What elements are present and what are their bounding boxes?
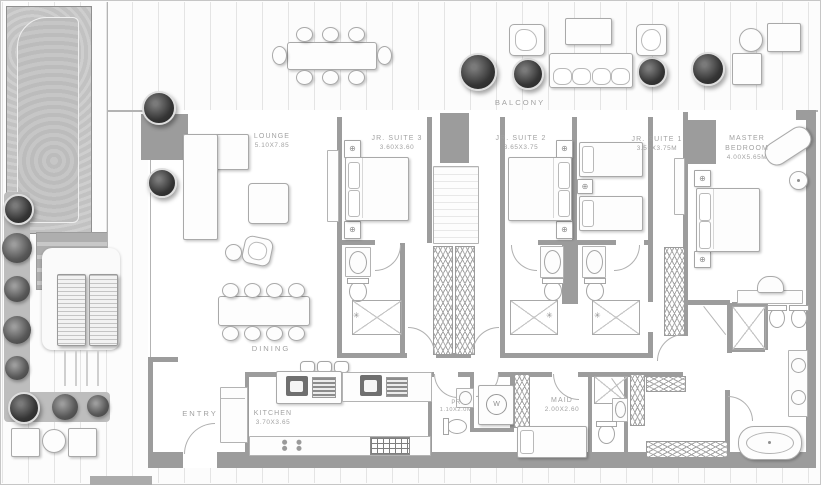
cushion (246, 240, 268, 262)
sink (791, 390, 806, 405)
dresser (674, 158, 685, 215)
shower-head-icon: ✳ (353, 312, 360, 320)
pillow (348, 190, 360, 217)
deck-step-boards (64, 350, 108, 386)
nightstand: ⊕ (694, 170, 711, 187)
nightstand: ⊕ (556, 221, 573, 239)
gas-hob (370, 437, 410, 455)
wardrobe (455, 246, 475, 355)
room-dims: 3.60X3.60 (372, 144, 423, 153)
toilet-tank (347, 278, 369, 284)
cooktop (278, 438, 308, 452)
shrub-icon (87, 395, 109, 417)
cushion (641, 29, 661, 51)
dining-chair (288, 326, 305, 341)
sink (349, 251, 367, 274)
washer-drum: W (486, 394, 507, 415)
dining-chair (288, 283, 305, 298)
room-name: JR. SUITE 1 (632, 136, 683, 143)
sink (586, 250, 603, 274)
toilet-tank (443, 418, 449, 435)
wall (148, 357, 178, 362)
counter-sink (360, 375, 382, 396)
column (796, 110, 808, 120)
potted-plant-icon (142, 91, 176, 125)
sink (791, 358, 806, 373)
nightstand: ⊕ (344, 221, 361, 239)
shrub-icon (2, 233, 32, 263)
nightstand: ⊕ (694, 251, 711, 268)
bed-maid (517, 426, 587, 458)
outdoor-dining-chair (296, 27, 313, 42)
bed-jr-suite-3 (345, 157, 409, 221)
wardrobe (646, 441, 728, 458)
room-dims: 1.10X2.0M (440, 407, 472, 415)
outdoor-dining-chair (322, 27, 339, 42)
toilet-tank (596, 421, 617, 427)
side-table (225, 244, 242, 261)
toilet (447, 419, 467, 434)
kitchen-label: KITCHEN 3.70X3.65 (254, 409, 292, 428)
dining-chair (244, 326, 261, 341)
outdoor-dining-chair (377, 46, 392, 65)
floor-plan: ⊕ ⊕ ⊕ ⊕ ⊕ ⊕ ⊕ ✳ (0, 0, 821, 485)
wardrobe (433, 246, 453, 355)
outdoor-armchair (636, 24, 667, 56)
outdoor-stool (732, 53, 762, 85)
center-dot (797, 179, 800, 182)
oven-rack (386, 377, 408, 397)
washer-label: W (493, 401, 500, 408)
bed-master (696, 188, 760, 252)
wall (644, 240, 653, 245)
closet-bench (433, 166, 479, 244)
toilet (598, 424, 615, 444)
powder-room-label: PR 1.10X2.0M (440, 399, 472, 415)
shower-head-icon: ✳ (594, 312, 601, 320)
shrub-icon (52, 394, 78, 420)
outdoor-chair (11, 428, 40, 457)
outdoor-armchair (509, 24, 545, 56)
bidet (791, 308, 807, 328)
wall (427, 117, 432, 243)
wall (342, 240, 375, 245)
balcony-label: BALCONY (495, 98, 545, 109)
dining-chair (222, 283, 239, 298)
tv-console (327, 150, 339, 222)
washing-machine: W (478, 385, 514, 425)
deck-edge-shadow (90, 476, 152, 485)
entry-label: ENTRY (182, 409, 218, 420)
room-name: MASTER BEDROOM (725, 135, 769, 152)
lamp-icon: ⊕ (699, 175, 706, 183)
entry-door-gap (183, 452, 217, 468)
vanity-stool (757, 276, 784, 293)
outdoor-dining-chair (322, 70, 339, 85)
room-dims: 3.65X3.75 (496, 144, 547, 153)
outdoor-dining-chair (296, 70, 313, 85)
toilet (769, 308, 785, 328)
wall (648, 332, 653, 358)
jr-suite-2-label: JR. SUITE 2 3.65X3.75 (496, 134, 547, 153)
outdoor-side-table (767, 23, 801, 52)
room-name: LOUNGE (254, 133, 290, 140)
sink-basin (290, 381, 303, 392)
wall (474, 428, 514, 432)
wall (500, 353, 648, 358)
tub-drain (768, 441, 771, 444)
nightstand: ⊕ (556, 140, 573, 158)
shrub-icon (3, 316, 31, 344)
potted-plant-icon (147, 168, 177, 198)
coffee-table (248, 183, 289, 224)
pouf-table (789, 171, 808, 190)
wall (578, 240, 616, 245)
dining-chair (244, 283, 261, 298)
planter-plant-icon (8, 392, 40, 424)
outdoor-dining-chair (272, 46, 287, 65)
shrub-icon (4, 276, 30, 302)
dining-label: DINING (252, 344, 291, 355)
nightstand: ⊕ (344, 140, 361, 158)
fridge-divider (221, 398, 245, 399)
pillow (348, 162, 360, 189)
cushion (592, 68, 611, 85)
column (686, 120, 716, 164)
toilet-tank (767, 305, 787, 311)
cushion (553, 68, 572, 85)
pillow (582, 200, 594, 227)
lamp-icon: ⊕ (561, 145, 568, 153)
blanket-line (713, 189, 714, 249)
pillow (582, 146, 594, 173)
room-dims: 5.10X7.85 (254, 142, 290, 151)
sink-basin (364, 380, 377, 392)
wall (337, 353, 407, 358)
room-name: JR. SUITE 3 (372, 135, 423, 142)
outdoor-dining-chair (348, 70, 365, 85)
outdoor-round-table (42, 429, 66, 453)
shower-head-icon: ✳ (546, 312, 553, 320)
potted-plant-icon (459, 53, 497, 91)
jr-suite-3-label: JR. SUITE 3 3.60X3.60 (372, 134, 423, 153)
wall (588, 372, 592, 458)
wall (500, 117, 505, 358)
pillow (558, 162, 570, 189)
wall (688, 300, 730, 305)
toilet (586, 281, 604, 301)
outdoor-side-table (565, 18, 612, 45)
wardrobe (664, 247, 685, 336)
lamp-icon: ⊕ (582, 183, 589, 191)
sun-lounger (89, 274, 118, 346)
pillow (520, 430, 534, 454)
toilet (349, 281, 367, 302)
fridge (220, 387, 248, 443)
room-dims: 2.00X2.60 (545, 406, 580, 415)
blanket-line (362, 158, 363, 218)
dining-chair (222, 326, 239, 341)
room-dims: 4.00X5.65M (719, 154, 775, 163)
lamp-icon: ⊕ (561, 226, 568, 234)
shower (732, 306, 766, 350)
dining-table (218, 296, 310, 326)
dining-chair (266, 326, 283, 341)
jr-suite-1-label: JR. SUITE 1 3.55X3.75M (632, 135, 683, 154)
lamp-icon: ⊕ (349, 145, 356, 153)
room-name: JR. SUITE 2 (496, 135, 547, 142)
dining-chair (266, 283, 283, 298)
bidet-tank (789, 305, 809, 311)
wall (148, 357, 153, 457)
outdoor-round-table (739, 28, 763, 52)
cushion (611, 68, 630, 85)
lounge-label: LOUNGE 5.10X7.85 (254, 132, 290, 151)
pillow (558, 190, 570, 217)
wardrobe (514, 374, 530, 428)
potted-plant-icon (637, 57, 667, 87)
room-dims: 3.55X3.75M (632, 145, 683, 154)
outdoor-dining-chair (348, 27, 365, 42)
wardrobe (630, 374, 645, 426)
toilet (544, 281, 562, 301)
outdoor-sofa (549, 53, 633, 88)
shrub-icon (5, 356, 29, 380)
lamp-icon: ⊕ (349, 226, 356, 234)
bed-single (579, 196, 643, 231)
sun-lounger (57, 274, 86, 346)
column (440, 113, 469, 163)
pillow (699, 193, 711, 221)
room-dims: 3.70X3.65 (254, 419, 292, 428)
room-name: KITCHEN (254, 410, 292, 417)
maid-room-label: MAID 2.00X2.60 (545, 396, 580, 415)
bathtub (738, 426, 802, 460)
outdoor-dining-table (287, 42, 377, 70)
wardrobe (646, 376, 686, 392)
toilet-tank (542, 278, 564, 284)
room-name: PR (451, 400, 460, 406)
lamp-icon: ⊕ (699, 256, 706, 264)
island-sink (286, 376, 308, 396)
sofa-l-shape (183, 134, 218, 240)
potted-plant-icon (512, 58, 544, 90)
cushion (572, 68, 591, 85)
wall (562, 240, 578, 304)
island-grill (312, 377, 336, 398)
blanket-line (553, 158, 554, 218)
potted-plant-icon (691, 52, 725, 86)
wall (245, 372, 277, 377)
bed-jr-suite-2 (508, 157, 572, 221)
planter-plant-icon (3, 194, 34, 225)
nightstand: ⊕ (577, 179, 593, 194)
wall (538, 240, 562, 245)
master-bedroom-label: MASTER BEDROOM 4.00X5.65M (719, 134, 775, 163)
toilet-tank (584, 278, 606, 284)
room-name: MAID (551, 397, 573, 404)
cushion (515, 29, 537, 51)
pillow (699, 221, 711, 249)
planter-vertical (4, 192, 30, 420)
outdoor-chair (68, 428, 97, 457)
sink (615, 401, 626, 418)
sink (544, 250, 561, 274)
